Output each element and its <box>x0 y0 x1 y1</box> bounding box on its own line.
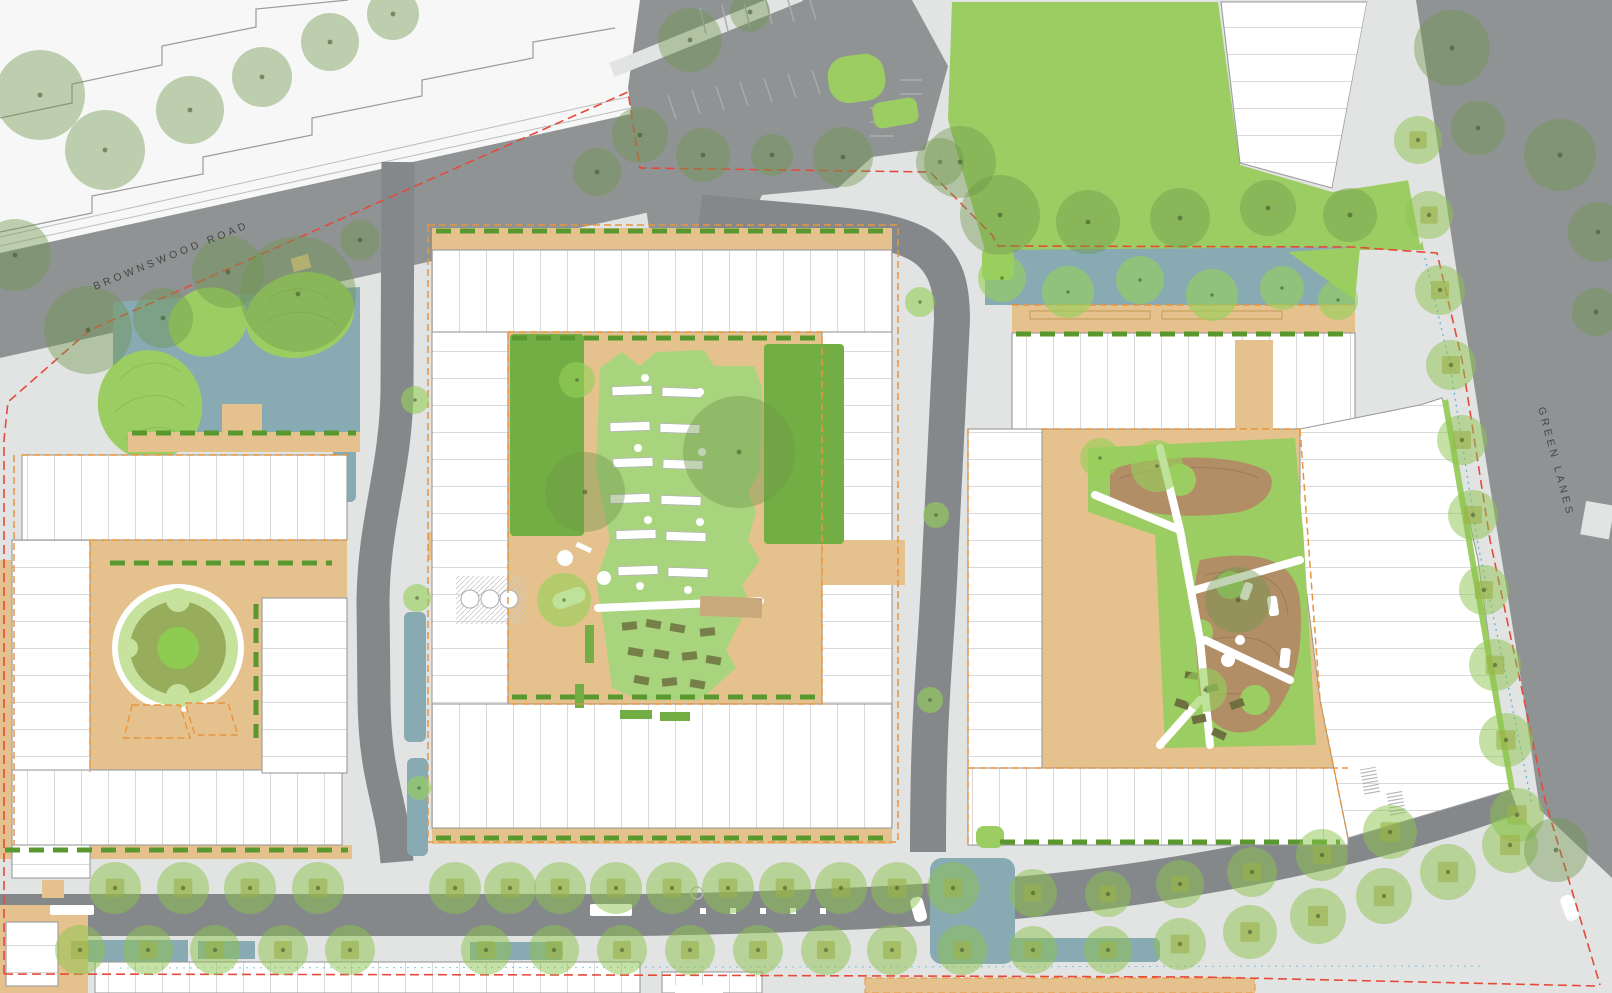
tree-trunk-dot <box>1106 892 1110 896</box>
tree-trunk-dot <box>103 148 108 153</box>
tree-trunk-dot <box>770 153 775 158</box>
tree-trunk-dot <box>918 300 922 304</box>
tree-trunk-dot <box>484 948 488 952</box>
allotment-bed <box>610 421 650 431</box>
left-block-north-wing <box>22 455 347 540</box>
timber-deck <box>700 596 763 618</box>
center-block <box>428 225 905 844</box>
tree-trunk-dot <box>113 886 117 890</box>
tree-trunk-dot <box>960 948 964 952</box>
tree-trunk-dot <box>1316 914 1320 918</box>
tree-trunk-dot <box>998 213 1003 218</box>
tree-trunk-dot <box>1594 310 1599 315</box>
tree-trunk-dot <box>181 886 185 890</box>
allotment-bed <box>661 495 701 505</box>
tree-trunk-dot <box>1438 288 1442 292</box>
planting-dot <box>696 518 704 526</box>
tree-trunk-dot <box>951 886 955 890</box>
tree-trunk-dot <box>958 160 963 165</box>
picnic-table <box>662 677 678 687</box>
tree-trunk-dot <box>38 93 43 98</box>
tree-trunk-dot <box>1460 438 1464 442</box>
tree-trunk-dot <box>638 133 643 138</box>
tree-trunk-dot <box>1236 598 1241 603</box>
tree-trunk-dot <box>1515 813 1519 817</box>
tree-trunk-dot <box>1493 663 1497 667</box>
tree-trunk-dot <box>737 450 742 455</box>
tree-trunk-dot <box>583 490 588 495</box>
tree-trunk-dot <box>348 948 352 952</box>
allotment-bed <box>666 531 706 541</box>
allotment-bed <box>613 457 653 467</box>
tree-trunk-dot <box>281 948 285 952</box>
tree-trunk-dot <box>1596 230 1601 235</box>
tree-trunk-dot <box>1388 830 1392 834</box>
picnic-table <box>700 627 716 637</box>
tree-trunk-dot <box>358 238 363 243</box>
tree-trunk-dot <box>1178 942 1182 946</box>
planting-dot <box>636 582 644 590</box>
tree-trunk-dot <box>248 886 252 890</box>
tree-trunk-dot <box>1000 276 1004 280</box>
tree-trunk-dot <box>688 948 692 952</box>
right-block-south-wing <box>968 768 1348 845</box>
tree-trunk-dot <box>1031 948 1035 952</box>
tree-trunk-dot <box>748 10 753 15</box>
tree-trunk-dot <box>316 886 320 890</box>
tree-trunk-dot <box>1382 894 1386 898</box>
tree-trunk-dot <box>552 948 556 952</box>
picnic-table <box>682 651 698 661</box>
tree-trunk-dot <box>1138 278 1142 282</box>
tree-trunk-dot <box>1178 882 1182 886</box>
tree-trunk-dot <box>508 886 512 890</box>
tree-trunk-dot <box>1558 153 1563 158</box>
tree-trunk-dot <box>895 886 899 890</box>
tree-trunk-dot <box>1031 891 1035 895</box>
left-block-south-wing <box>12 770 342 845</box>
tree-trunk-dot <box>1348 213 1353 218</box>
right-block-north-wing <box>1012 333 1355 429</box>
tree-trunk-dot <box>1266 206 1271 211</box>
tree-trunk-dot <box>1554 848 1559 853</box>
tree-trunk-dot <box>841 155 846 160</box>
tree-trunk-dot <box>1427 213 1431 217</box>
tree-trunk-dot <box>188 108 193 113</box>
growing-pots <box>456 576 526 624</box>
tree-trunk-dot <box>1066 290 1070 294</box>
tree-trunk-dot <box>688 38 693 43</box>
tree-trunk-dot <box>1482 588 1486 592</box>
tree-trunk-dot <box>78 948 82 952</box>
planting-dot <box>696 388 704 396</box>
tree-trunk-dot <box>1098 456 1102 460</box>
tree-trunk-dot <box>1476 126 1481 131</box>
tree-trunk-dot <box>1336 298 1340 302</box>
tree-trunk-dot <box>1203 688 1207 692</box>
tree-trunk-dot <box>415 596 419 600</box>
tree-trunk-dot <box>756 948 760 952</box>
tree-trunk-dot <box>146 948 150 952</box>
tree-trunk-dot <box>1280 286 1284 290</box>
allotment-bed <box>668 567 708 577</box>
center-block-west-wing <box>432 332 508 704</box>
tree-trunk-dot <box>161 316 166 321</box>
tree-trunk-dot <box>595 170 600 175</box>
tree-trunk-dot <box>413 398 417 402</box>
tree-trunk-dot <box>614 886 618 890</box>
tree-trunk-dot <box>296 292 301 297</box>
tree-trunk-dot <box>391 12 396 17</box>
tree-trunk-dot <box>620 948 624 952</box>
site-plan: BROWNSWOOD ROAD GREEN LANES <box>0 0 1612 993</box>
tree-trunk-dot <box>13 253 18 258</box>
tree-trunk-dot <box>1210 293 1214 297</box>
tree-trunk-dot <box>1250 870 1254 874</box>
left-courtyard-oval-lawn <box>112 584 244 712</box>
tree-trunk-dot <box>453 886 457 890</box>
left-block-east-wing <box>262 598 347 773</box>
allotment-bed <box>612 385 652 395</box>
tree-trunk-dot <box>1178 216 1183 221</box>
planting-dot <box>644 516 652 524</box>
picnic-table <box>622 621 638 631</box>
center-block-south-wing <box>432 704 892 828</box>
tree-trunk-dot <box>1248 930 1252 934</box>
center-block-north-wing <box>432 250 892 332</box>
tree-trunk-dot <box>824 948 828 952</box>
tree-trunk-dot <box>260 75 265 80</box>
tree-trunk-dot <box>1416 138 1420 142</box>
tree-trunk-dot <box>562 598 566 602</box>
tree-trunk-dot <box>1504 738 1508 742</box>
tree-trunk-dot <box>1446 870 1450 874</box>
tree-trunk-dot <box>558 886 562 890</box>
tree-trunk-dot <box>701 153 706 158</box>
allotment-bed <box>616 529 656 539</box>
planting-dot <box>684 586 692 594</box>
allotment-bed <box>618 565 658 575</box>
tree-trunk-dot <box>213 948 217 952</box>
tree-trunk-dot <box>1450 46 1455 51</box>
tree-trunk-dot <box>934 513 938 517</box>
tree-trunk-dot <box>1106 948 1110 952</box>
tree-trunk-dot <box>726 886 730 890</box>
tree-trunk-dot <box>1320 853 1324 857</box>
tree-trunk-dot <box>1508 843 1512 847</box>
tree-trunk-dot <box>1471 513 1475 517</box>
tree-trunk-dot <box>575 378 579 382</box>
tree-trunk-dot <box>86 328 91 333</box>
tree-trunk-dot <box>928 698 932 702</box>
tree-trunk-dot <box>839 886 843 890</box>
tree-trunk-dot <box>783 886 787 890</box>
tree-trunk-dot <box>890 948 894 952</box>
planting-dot <box>641 374 649 382</box>
tree-trunk-dot <box>670 886 674 890</box>
tree-trunk-dot <box>328 40 333 45</box>
tree-trunk-dot <box>1155 464 1159 468</box>
tree-trunk-dot <box>417 786 421 790</box>
planting-dot <box>634 444 642 452</box>
tree-trunk-dot <box>1086 220 1091 225</box>
tree-trunk-dot <box>1449 363 1453 367</box>
tree-trunk-dot <box>226 270 231 275</box>
